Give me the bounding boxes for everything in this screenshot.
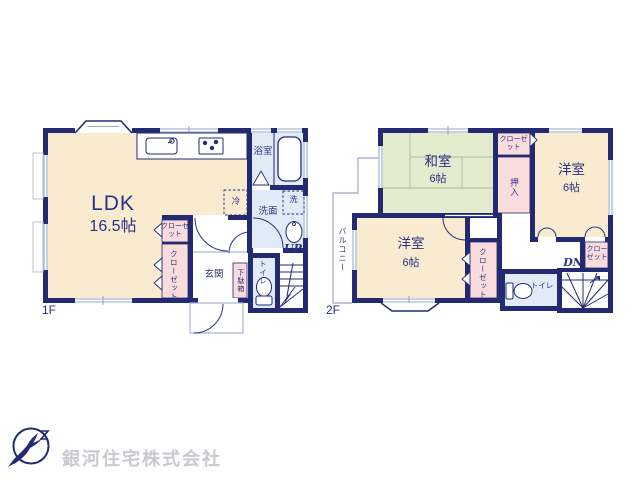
- stairs-up-label: UP: [281, 243, 305, 255]
- stove: [199, 138, 223, 154]
- kitchen-sink: [146, 138, 177, 154]
- company-name: 銀河住宅株式会社: [62, 449, 222, 469]
- shoe-cabinet-label: 下駄箱: [236, 266, 244, 296]
- fridge-label: 冷: [226, 197, 246, 207]
- closet2f-right-label: クローゼット: [584, 246, 610, 262]
- entrance-label: 玄関: [194, 270, 234, 281]
- western-room-left-label: 洋室: [357, 236, 465, 251]
- floor1-label: 1F: [42, 304, 66, 317]
- floorplan-page: LDK 16.5帖 浴室 洗面 洗 冷 クローゼット クローゼット 玄関 下駄箱…: [0, 0, 640, 480]
- window-sill: [33, 153, 43, 199]
- kitchen-counter: [137, 133, 247, 159]
- bathtub: [278, 137, 301, 181]
- company-logo-bird: [8, 429, 49, 468]
- ldk-door-arc: [195, 218, 228, 251]
- bay-window-2f: [381, 303, 439, 311]
- closet2f-top-label: クローゼット: [497, 136, 530, 152]
- floorplan-drawing: [0, 0, 640, 480]
- ldk-label: LDK: [48, 192, 178, 216]
- closet2f-left-label: クローゼット: [478, 248, 486, 294]
- stairs-1f: [280, 263, 303, 307]
- oshiire-label: 押入: [509, 172, 519, 202]
- stairs-down-label: DN: [561, 257, 585, 269]
- japanese-room-label: 和室: [383, 154, 493, 169]
- western-room-left-size: 6帖: [357, 257, 465, 269]
- entrance-porch: [190, 303, 243, 333]
- closet1f-lower-label: クローゼット: [169, 250, 177, 296]
- floor2-label: 2F: [326, 304, 352, 317]
- toilet2f-label: トイレ: [528, 282, 556, 290]
- western-room-right-label: 洋室: [535, 162, 608, 177]
- stairs-2f: [562, 273, 608, 308]
- ldk-size: 16.5帖: [48, 218, 178, 236]
- washstand-sink: [286, 222, 302, 243]
- bay-window-1f: [75, 121, 132, 133]
- washer-label: 洗: [286, 196, 301, 205]
- balcony-label: バルコニー: [337, 221, 346, 277]
- bathroom-label: 浴室: [250, 147, 276, 158]
- toilet1f-door-arc: [229, 232, 250, 253]
- japanese-room-size: 6帖: [383, 173, 493, 185]
- toilet1f-label: トイレ: [258, 259, 266, 287]
- closet1f-upper-label: クローゼット: [161, 223, 189, 239]
- western-room-right-size: 6帖: [535, 182, 608, 194]
- window-sill: [33, 222, 43, 272]
- washroom-label: 洗面: [252, 207, 284, 218]
